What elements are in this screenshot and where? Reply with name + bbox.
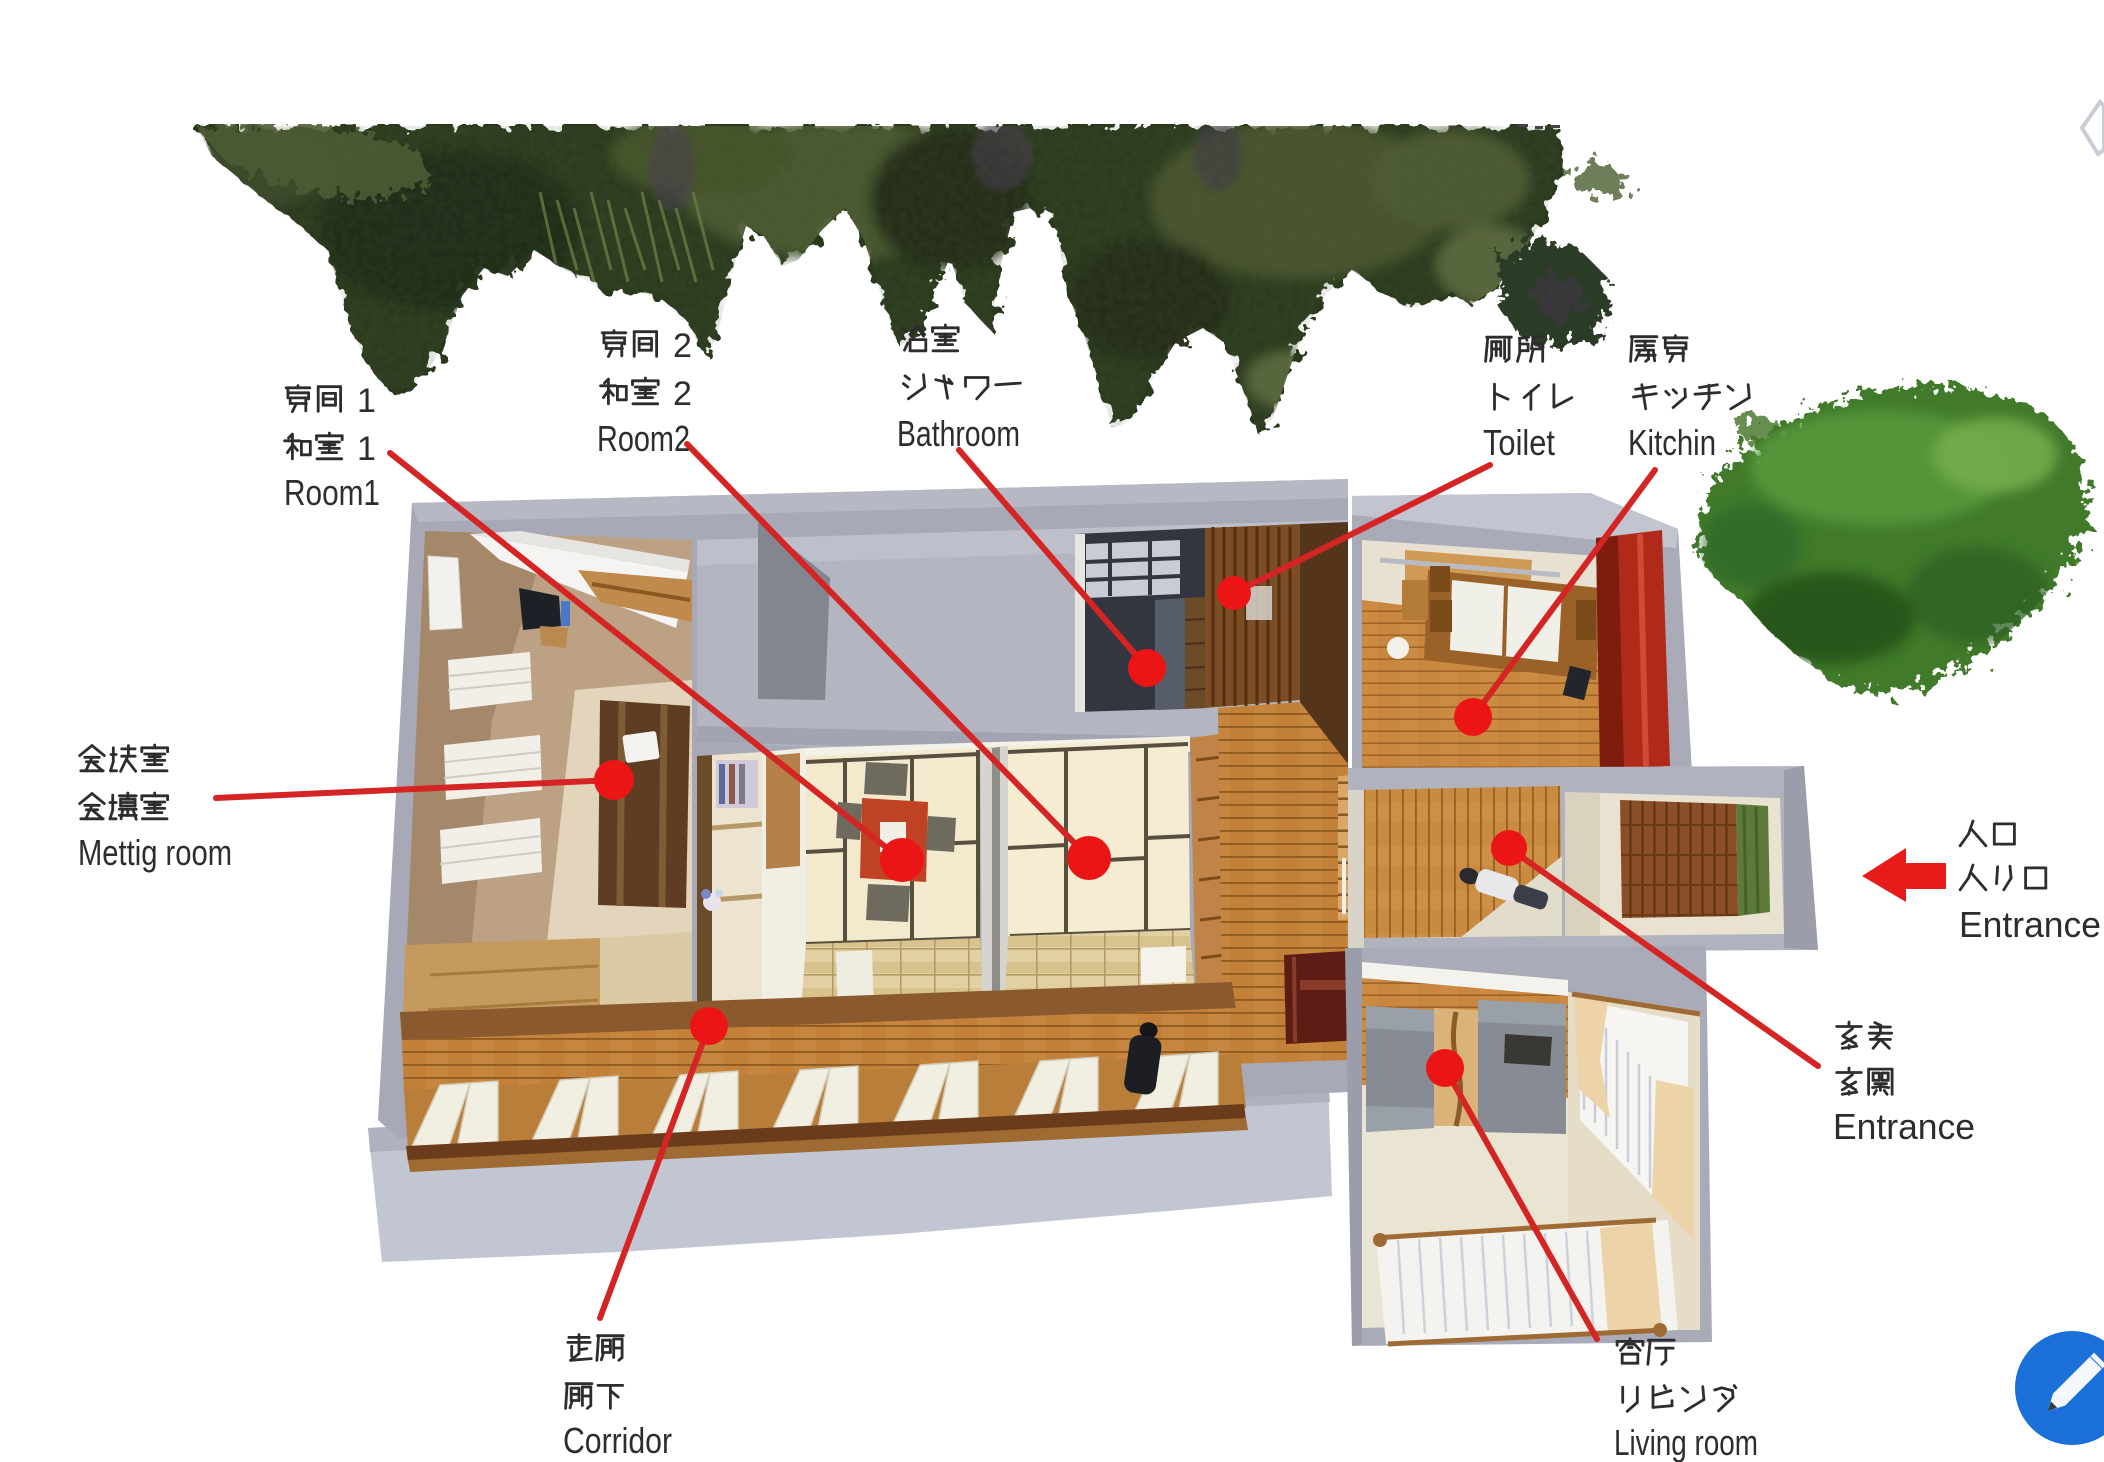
svg-text:Entrance: Entrance xyxy=(1833,1106,1975,1147)
svg-text:Room1: Room1 xyxy=(284,472,380,513)
svg-text:2: 2 xyxy=(673,375,692,413)
svg-text:Entrance: Entrance xyxy=(1959,904,2101,945)
svg-text:Living room: Living room xyxy=(1614,1422,1758,1462)
svg-text:Toilet: Toilet xyxy=(1483,422,1555,463)
svg-text:Corridor: Corridor xyxy=(563,1420,672,1461)
svg-text:Mettig room: Mettig room xyxy=(78,832,232,873)
svg-text:Kitchin: Kitchin xyxy=(1628,422,1716,463)
svg-text:Bathroom: Bathroom xyxy=(897,413,1020,454)
svg-text:1: 1 xyxy=(357,430,376,468)
svg-text:1: 1 xyxy=(357,382,376,420)
svg-text:Room2: Room2 xyxy=(597,418,690,459)
svg-text:2: 2 xyxy=(673,327,692,365)
